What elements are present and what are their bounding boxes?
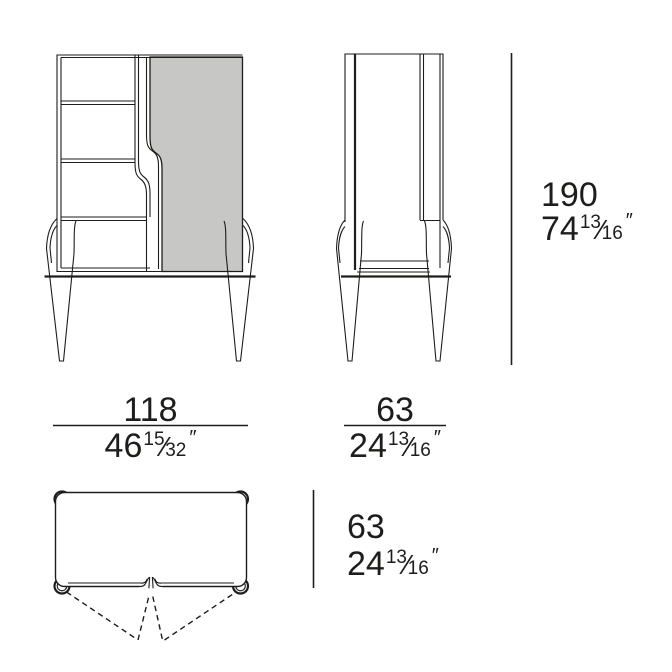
- front-view: [45, 55, 256, 361]
- side-frame: [345, 54, 443, 268]
- top-view: [55, 492, 249, 641]
- height-imperial-denominator: 16: [602, 223, 623, 244]
- line-art: [0, 0, 672, 672]
- width-imperial-whole: 46: [105, 427, 143, 465]
- door-panel: [150, 57, 243, 272]
- width-imperial-denominator: 32: [165, 440, 186, 461]
- inch-mark: ″: [189, 427, 196, 449]
- side-right-leg: [425, 220, 452, 361]
- height-dimension-imperial: 7413⁄16″: [541, 211, 633, 246]
- inch-mark: ″: [432, 545, 439, 567]
- side-depth-dimension-imperial: 2413⁄16″: [344, 428, 446, 463]
- height-dimension-metric: 190: [541, 178, 598, 212]
- furniture-dimension-diagram: 190 7413⁄16″ 118 4615⁄32″ 63 2413⁄16″ 63…: [0, 0, 672, 672]
- side-right-leg-detail: [443, 227, 450, 264]
- width-imperial-numerator: 15: [143, 429, 164, 450]
- plan-depth-imperial-whole: 24: [347, 545, 385, 583]
- plan-depth-imperial-denominator: 16: [408, 558, 429, 579]
- side-bottom-lines: [357, 261, 430, 272]
- front-right-leg-detail: [243, 226, 250, 264]
- side-view: [337, 54, 452, 361]
- side-depth-imperial-whole: 24: [349, 427, 387, 465]
- shelves: [61, 101, 147, 221]
- height-imperial-numerator: 13: [580, 212, 601, 233]
- width-dimension-metric: 118: [53, 393, 248, 427]
- width-dimension-imperial: 4615⁄32″: [53, 428, 248, 463]
- middle-divider: [135, 55, 150, 271]
- front-left-leg-detail: [50, 226, 57, 264]
- plan-outline: [56, 493, 247, 587]
- side-left-leg-detail: [339, 227, 346, 264]
- plan-depth-dimension-imperial: 2413⁄16″: [347, 546, 439, 581]
- plan-depth-dimension-metric: 63: [347, 510, 385, 544]
- plan-depth-imperial-numerator: 13: [386, 547, 407, 568]
- side-depth-imperial-numerator: 13: [388, 429, 409, 450]
- inch-mark: ″: [626, 210, 633, 232]
- side-depth-dimension-metric: 63: [344, 393, 446, 427]
- height-imperial-whole: 74: [541, 210, 579, 248]
- inch-mark: ″: [434, 427, 441, 449]
- side-left-leg: [337, 220, 364, 361]
- side-depth-imperial-denominator: 16: [410, 440, 431, 461]
- door-swing-dashed: [67, 592, 237, 640]
